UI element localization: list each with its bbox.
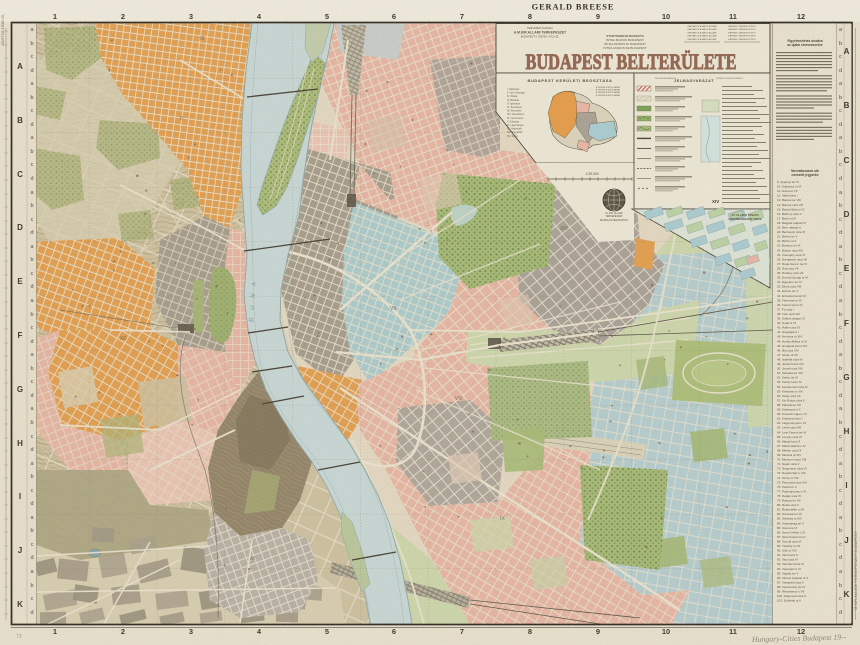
svg-text:73: 73 xyxy=(16,634,22,640)
